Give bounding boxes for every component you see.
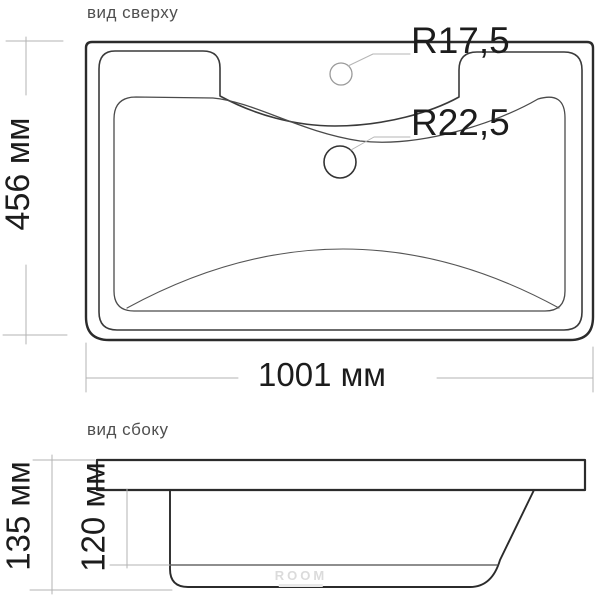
top-view-drawing	[3, 37, 593, 392]
top-view-title: вид сверху	[87, 4, 178, 21]
watermark-subtext-bar	[279, 584, 323, 587]
total-height-dimension-label: 135 мм	[2, 461, 35, 571]
drain-hole-leader-line	[351, 137, 410, 150]
top-view-rim-outline	[99, 51, 582, 330]
top-view-outer-outline	[86, 42, 593, 340]
faucet-hole-leader-line	[348, 54, 410, 66]
watermark-text: ROOM	[275, 569, 327, 582]
watermark: ROOM	[275, 569, 327, 587]
faucet-hole	[330, 63, 352, 85]
side-view-slab	[97, 460, 585, 490]
side-view-bowl	[170, 490, 534, 587]
depth-dimension-label: 456 мм	[1, 118, 35, 231]
side-view-title: вид сбоку	[87, 421, 169, 438]
faucet-hole-radius-label: R17,5	[411, 22, 510, 59]
bowl-height-dimension-lines	[110, 489, 170, 568]
sink-technical-drawing: вид сверху R17,5 R22,5 456 мм 1001 мм ви…	[0, 0, 600, 600]
width-dimension-label: 1001 мм	[258, 358, 386, 391]
drain-hole-radius-label: R22,5	[411, 104, 510, 141]
basin-floor-arc	[127, 249, 559, 308]
bowl-height-dimension-label: 120 мм	[77, 462, 110, 572]
drain-hole	[324, 146, 356, 178]
